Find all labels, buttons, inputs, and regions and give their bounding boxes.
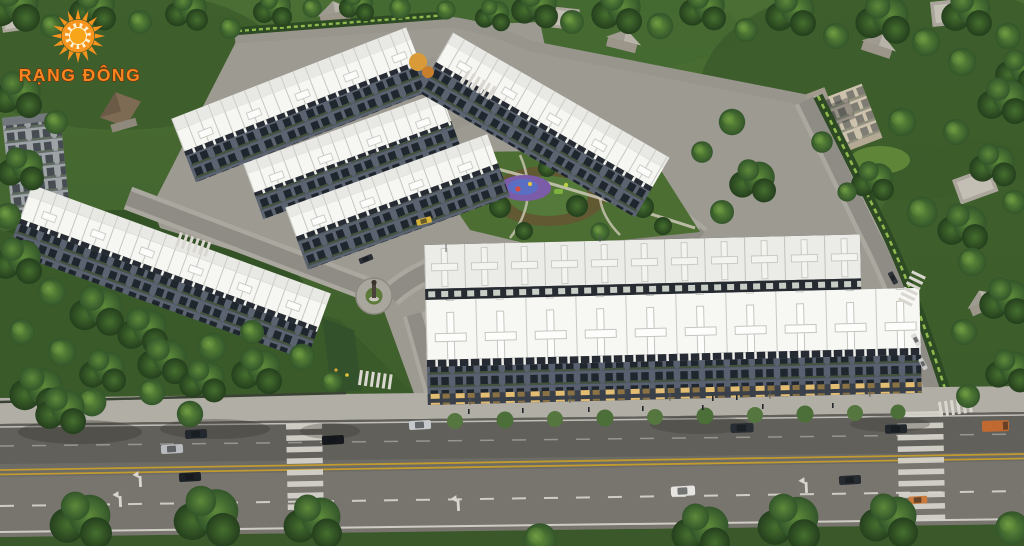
sun-with-rays-icon bbox=[51, 9, 105, 63]
car-suv bbox=[730, 423, 753, 433]
car-silver bbox=[161, 444, 183, 454]
car bbox=[179, 472, 201, 482]
car bbox=[322, 435, 344, 445]
brand-text: RẠNG ĐÔNG bbox=[19, 64, 141, 85]
car bbox=[885, 424, 907, 434]
car bbox=[839, 475, 861, 485]
slide bbox=[554, 189, 563, 194]
statue bbox=[372, 284, 376, 298]
van-white bbox=[671, 485, 696, 496]
truck-orange bbox=[982, 420, 1009, 432]
car-silver bbox=[409, 420, 431, 430]
car bbox=[185, 429, 207, 439]
townhouse-row-d bbox=[424, 233, 922, 405]
aerial-render: RẠNG ĐÔNG bbox=[0, 0, 1024, 546]
